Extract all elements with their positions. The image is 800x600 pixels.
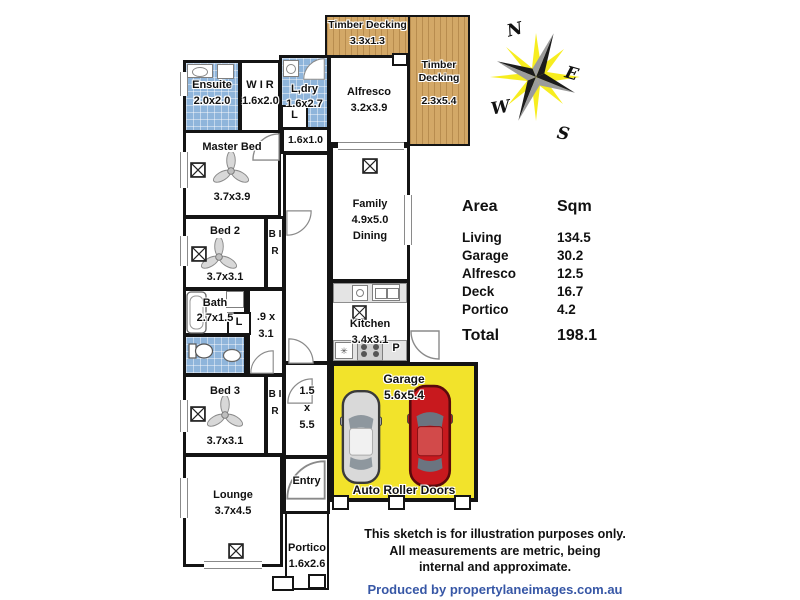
area-col-header: Area <box>462 198 557 216</box>
pillar <box>392 53 408 66</box>
room-label: W I R <box>242 79 278 93</box>
disclaimer-line: internal and approximate. <box>318 559 672 576</box>
table-row: Portico 4.2 <box>462 302 637 317</box>
window-icon <box>190 406 206 422</box>
fridge-icon: ✳ <box>335 342 353 359</box>
hall-dims: .9 x 3.1 <box>255 309 277 342</box>
row-label: Alfresco <box>462 266 557 281</box>
red-car-icon <box>406 384 454 488</box>
window-icon <box>362 158 378 174</box>
table-row: Garage 30.2 <box>462 248 637 263</box>
closet-linen: L <box>281 105 308 129</box>
disclaimer-line: All measurements are metric, being <box>318 543 672 560</box>
room-dims: 1.6x2.0 <box>242 95 278 109</box>
room-label: Alfresco <box>331 86 407 100</box>
hall-middle <box>283 152 330 364</box>
room-label: Family <box>333 198 407 212</box>
window-strip <box>180 152 188 188</box>
row-label: Portico <box>462 302 557 317</box>
table-row: Deck 16.7 <box>462 284 637 299</box>
table-row: Alfresco 12.5 <box>462 266 637 281</box>
row-label: Garage <box>462 248 557 263</box>
door-arc <box>250 350 274 374</box>
pillar <box>388 495 405 510</box>
pillar <box>308 574 326 589</box>
window-icon <box>191 246 207 262</box>
compass-rose: N E W S <box>483 14 595 146</box>
total-label: Total <box>462 327 557 345</box>
door-arc <box>288 338 314 364</box>
hall-main: 1.5 x 5.5 <box>283 362 330 458</box>
door-arc <box>410 330 440 360</box>
room-dims: 3.7x3.9 <box>186 191 278 205</box>
room-label-2: Dining <box>333 230 407 244</box>
room-label: L,dry <box>282 83 327 97</box>
room-label: Bed 2 <box>186 225 264 239</box>
total-value: 198.1 <box>557 327 637 345</box>
room-dims: 2.0x2.0 <box>186 95 238 109</box>
room-label: Timber Decking <box>410 59 468 85</box>
row-value: 30.2 <box>557 248 637 263</box>
toilet-icon <box>188 340 214 362</box>
row-value: 4.2 <box>557 302 637 317</box>
closet-label: B I R <box>268 227 282 260</box>
room-dims: 3.7x3.1 <box>186 435 264 449</box>
disclaimer: This sketch is for illustration purposes… <box>318 526 672 597</box>
row-value: 134.5 <box>557 230 637 245</box>
closet-linen-2: L <box>227 312 251 335</box>
producer-credit: Produced by propertylaneimages.com.au <box>318 582 672 597</box>
row-value: 12.5 <box>557 266 637 281</box>
closet-label: L <box>283 109 306 123</box>
disclaimer-line: This sketch is for illustration purposes… <box>318 526 672 543</box>
shower-icon <box>217 64 234 79</box>
room-dims: 4.9x5.0 <box>333 214 407 228</box>
bath-vanity-icon <box>226 291 244 308</box>
ceiling-fan-icon <box>206 396 244 434</box>
compass-w: W <box>489 96 511 119</box>
table-total-row: Total 198.1 <box>462 327 637 345</box>
room-dims: 3.2x3.9 <box>331 102 407 116</box>
window-strip <box>404 195 412 245</box>
pillar <box>272 576 294 591</box>
room-timber-decking-right: Timber Decking 2.3x5.4 <box>408 15 470 146</box>
row-value: 16.7 <box>557 284 637 299</box>
dishwasher-icon <box>352 285 368 301</box>
room-label: Lounge <box>186 489 280 503</box>
closet-label: L <box>229 316 249 330</box>
vanity-icon <box>187 64 213 78</box>
window-strip <box>180 400 188 432</box>
room-dims: 3.3x1.3 <box>327 35 408 48</box>
window-strip <box>338 142 404 150</box>
row-label: Living <box>462 230 557 245</box>
floorplan-page: { "plan": { "deck_top": {"name": "Timber… <box>0 0 800 600</box>
pillar <box>454 495 471 510</box>
sqm-col-header: Sqm <box>557 198 637 216</box>
window-strip <box>180 478 188 518</box>
pillar <box>332 495 349 510</box>
row-label: Deck <box>462 284 557 299</box>
window-strip <box>180 236 188 266</box>
door-arc <box>287 378 313 404</box>
closet-bir-bed2: B I R <box>265 216 285 290</box>
sink-icon <box>372 284 400 301</box>
room-alfresco: Alfresco 3.2x3.9 <box>328 55 410 145</box>
closet-bir-bed3: B I R <box>265 374 285 456</box>
table-row: Living 134.5 <box>462 230 637 245</box>
room-timber-decking-top: Timber Decking 3.3x1.3 <box>325 15 410 57</box>
room-dims: 3.7x4.5 <box>186 505 280 519</box>
hall-dims: 1.6x1.0 <box>284 134 327 147</box>
area-table: Area Sqm Living 134.5 Garage 30.2 Alfres… <box>462 198 637 345</box>
closet-label: B I R <box>268 387 282 420</box>
area-table-header: Area Sqm <box>462 198 637 216</box>
ceiling-fan-icon <box>212 152 250 190</box>
hall-landing: 1.6x1.0 <box>281 127 330 154</box>
window-icon <box>352 305 367 320</box>
window-icon <box>228 543 244 559</box>
entry-door-arc <box>286 460 326 500</box>
compass-starburst-icon <box>483 14 595 146</box>
silver-car-icon <box>340 388 382 486</box>
cooktop-icon <box>357 340 383 361</box>
room-label: Ensuite <box>186 79 238 93</box>
bathtub-icon <box>186 291 207 334</box>
laundry-trough-icon <box>283 60 299 77</box>
door-arc <box>303 58 325 80</box>
basin-icon <box>222 348 242 363</box>
room-dims: 2.3x5.4 <box>410 95 468 108</box>
room-label: Kitchen <box>333 318 407 332</box>
room-label: Timber Decking <box>327 19 408 32</box>
window-icon <box>190 162 206 178</box>
door-arc <box>252 133 280 161</box>
window-strip <box>204 561 262 569</box>
door-arc <box>286 210 312 236</box>
